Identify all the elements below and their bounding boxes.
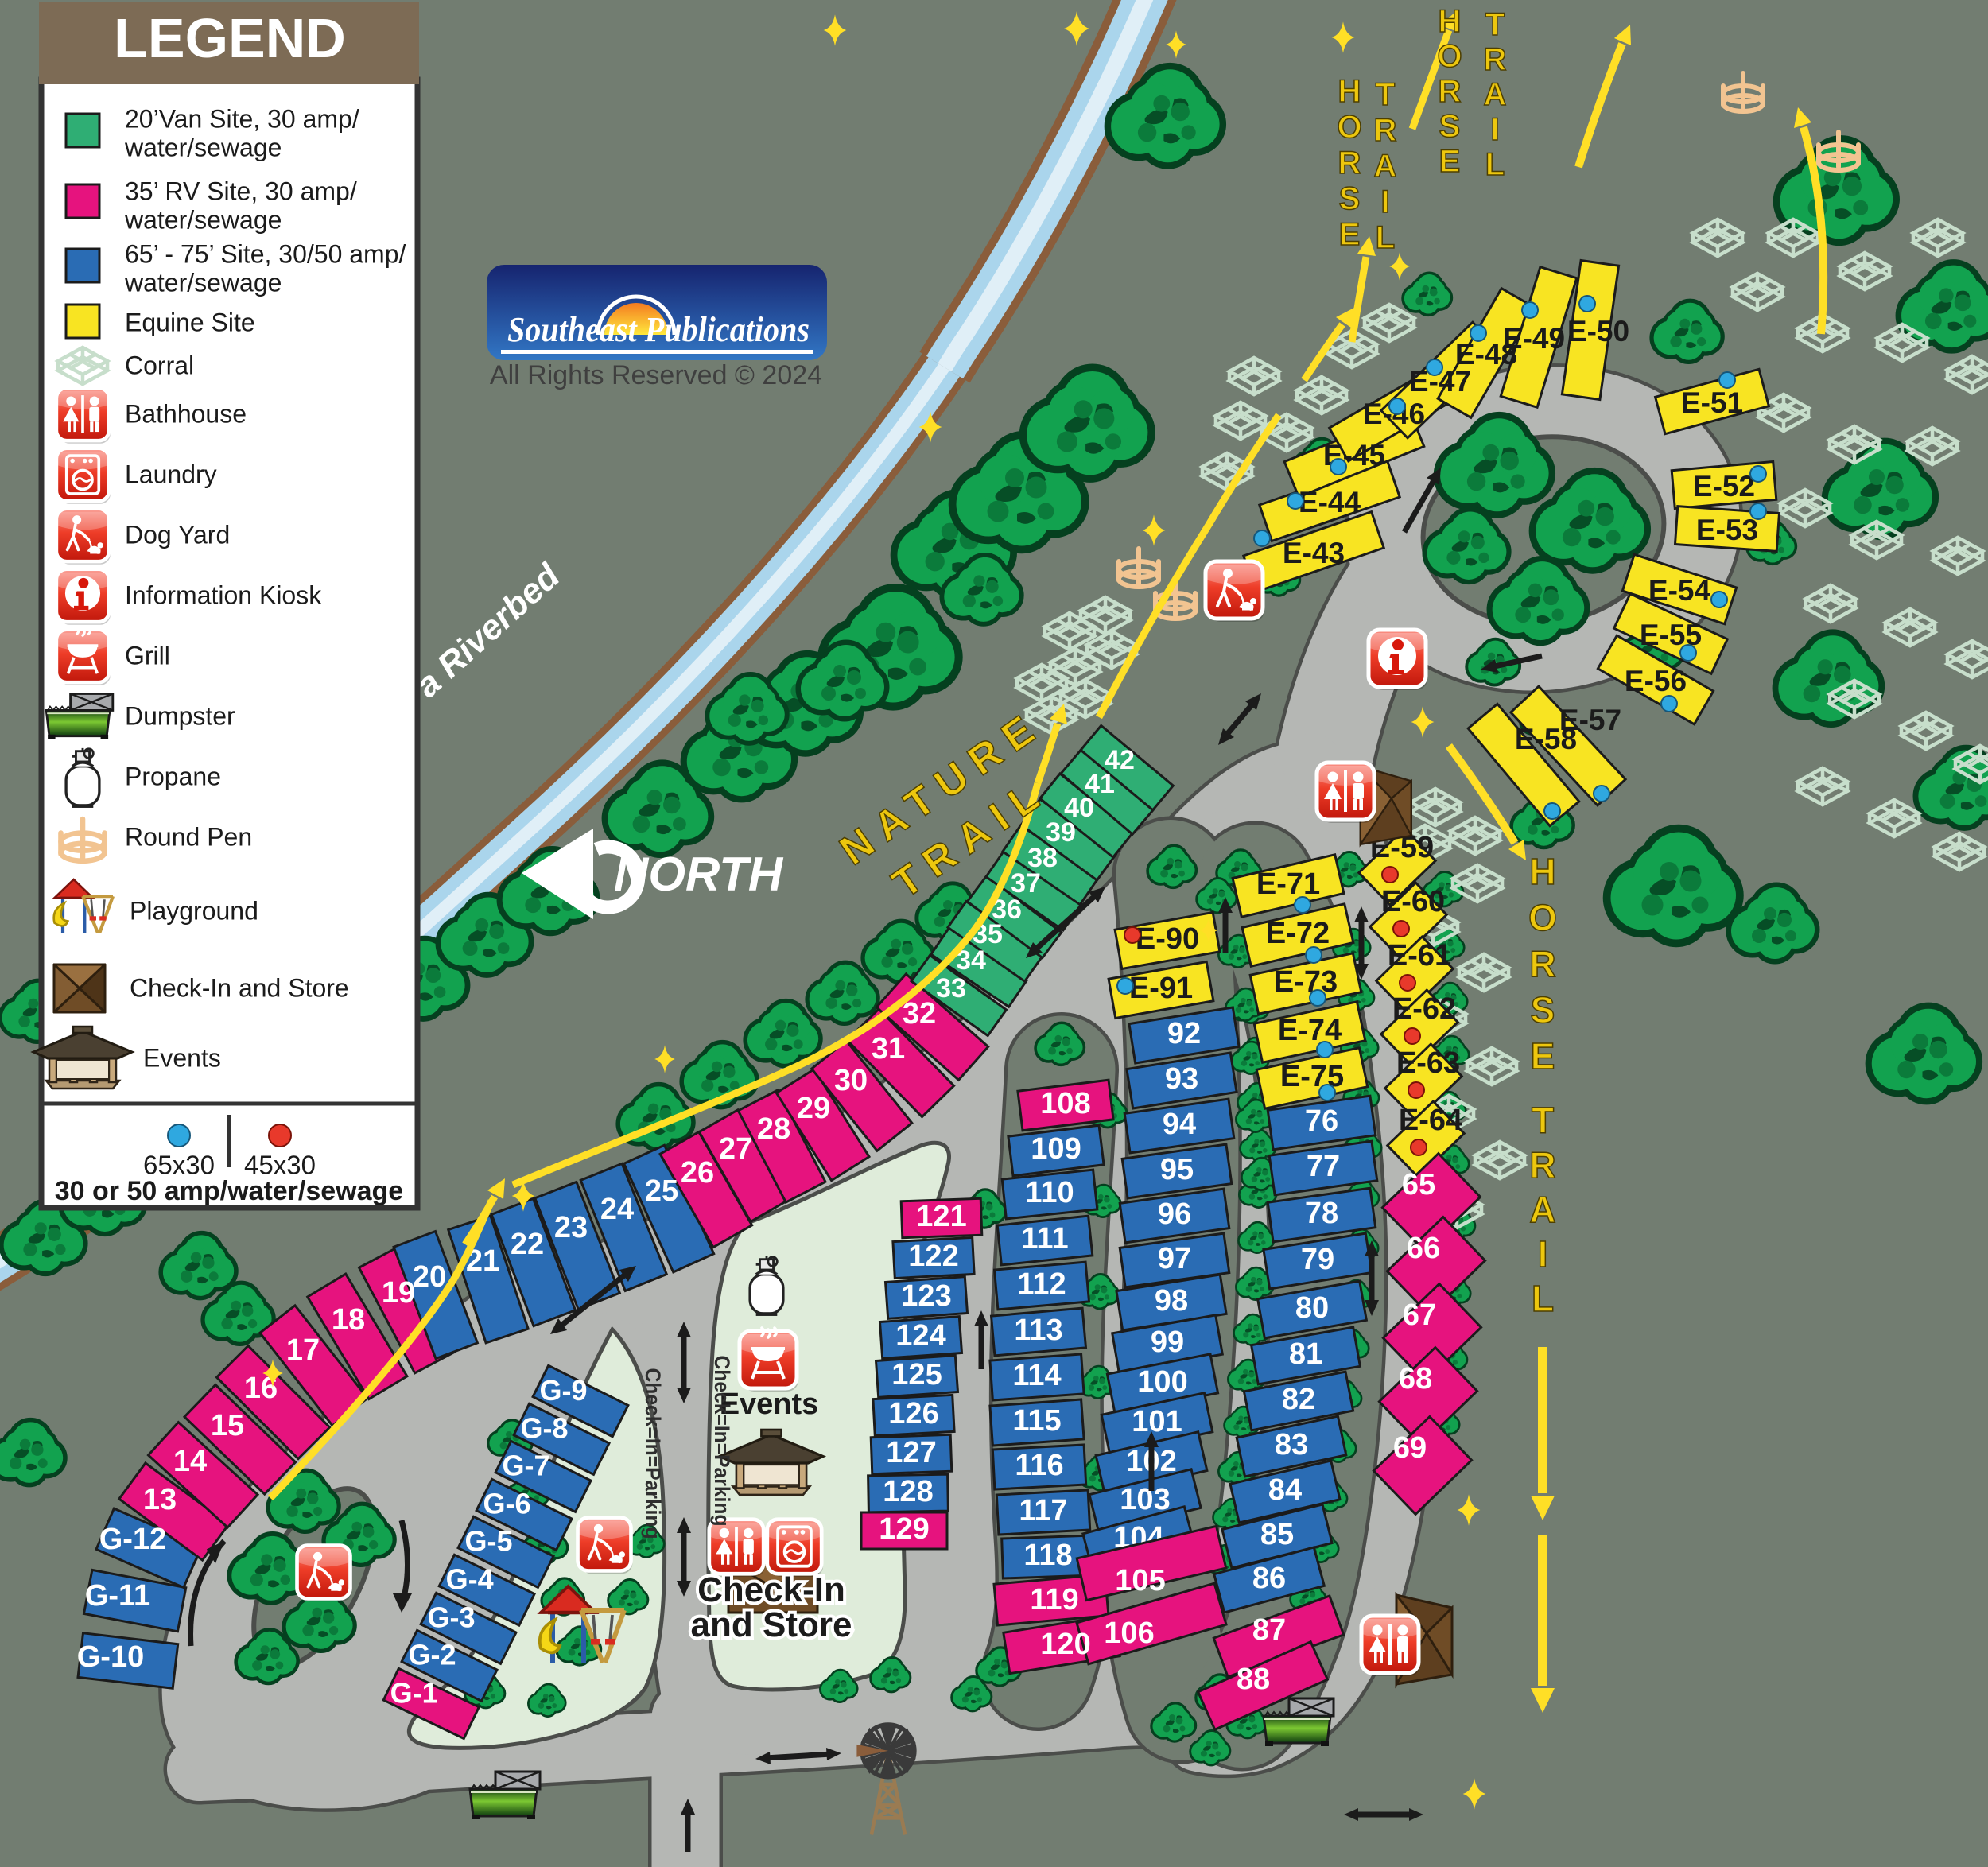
svg-text:LEGEND: LEGEND: [114, 7, 346, 69]
svg-text:13: 13: [143, 1483, 177, 1516]
svg-text:65: 65: [1402, 1168, 1435, 1201]
svg-text:78: 78: [1305, 1197, 1338, 1230]
svg-text:67: 67: [1403, 1298, 1436, 1332]
svg-text:80: 80: [1295, 1291, 1329, 1325]
svg-text:35’ RV Site, 30 amp/: 35’ RV Site, 30 amp/: [125, 177, 357, 205]
svg-text:H: H: [1338, 74, 1361, 109]
svg-text:S: S: [1531, 989, 1555, 1031]
svg-text:T: T: [1532, 1100, 1554, 1141]
svg-text:E-44: E-44: [1299, 486, 1361, 518]
svg-text:R: R: [1529, 943, 1555, 984]
svg-text:42: 42: [1105, 745, 1135, 775]
svg-text:E-56: E-56: [1625, 665, 1687, 697]
svg-text:82: 82: [1282, 1383, 1315, 1416]
svg-text:112: 112: [1017, 1267, 1066, 1301]
svg-text:O: O: [1528, 897, 1557, 938]
svg-text:I: I: [1380, 184, 1389, 219]
svg-text:20: 20: [413, 1260, 446, 1294]
svg-text:H: H: [1439, 4, 1462, 39]
svg-text:33: 33: [936, 973, 966, 1003]
svg-text:Laundry: Laundry: [125, 460, 217, 488]
svg-text:111: 111: [1021, 1222, 1068, 1256]
svg-text:E-49: E-49: [1503, 322, 1565, 355]
svg-text:L: L: [1532, 1278, 1554, 1319]
svg-text:68: 68: [1399, 1362, 1432, 1395]
svg-text:R: R: [1374, 113, 1397, 148]
svg-text:118: 118: [1023, 1539, 1072, 1572]
svg-text:93: 93: [1165, 1062, 1198, 1096]
svg-text:66: 66: [1407, 1232, 1440, 1265]
svg-text:water/sewage: water/sewage: [124, 205, 282, 234]
svg-text:E-43: E-43: [1283, 537, 1345, 569]
svg-text:G-5: G-5: [464, 1525, 512, 1558]
svg-text:A: A: [1484, 77, 1507, 112]
svg-text:14: 14: [173, 1445, 207, 1478]
svg-text:Propane: Propane: [125, 762, 221, 790]
svg-text:Dog Yard: Dog Yard: [125, 520, 230, 549]
svg-text:115: 115: [1012, 1404, 1061, 1438]
svg-text:20’Van Site, 30 amp/: 20’Van Site, 30 amp/: [125, 104, 359, 133]
svg-text:69: 69: [1393, 1431, 1427, 1465]
svg-text:98: 98: [1155, 1284, 1188, 1318]
svg-text:G-12: G-12: [99, 1523, 166, 1556]
svg-text:25: 25: [645, 1174, 678, 1208]
svg-text:19: 19: [382, 1276, 415, 1310]
svg-text:100: 100: [1137, 1365, 1187, 1399]
svg-text:Corral: Corral: [125, 351, 194, 379]
svg-text:S: S: [1439, 109, 1461, 144]
svg-text:G-6: G-6: [483, 1488, 530, 1520]
svg-text:E-64: E-64: [1399, 1104, 1462, 1137]
svg-text:31: 31: [872, 1032, 905, 1065]
svg-text:28: 28: [757, 1112, 790, 1146]
svg-text:120: 120: [1040, 1628, 1090, 1661]
svg-text:27: 27: [719, 1132, 752, 1166]
svg-text:T: T: [1485, 7, 1505, 42]
svg-text:126: 126: [888, 1397, 938, 1430]
svg-text:81: 81: [1289, 1337, 1322, 1371]
svg-text:15: 15: [211, 1409, 244, 1442]
svg-text:124: 124: [895, 1319, 945, 1353]
svg-text:T: T: [1376, 77, 1395, 112]
svg-text:106: 106: [1104, 1617, 1154, 1650]
svg-text:S: S: [1339, 181, 1361, 216]
svg-text:E: E: [1439, 144, 1461, 179]
svg-text:E-62: E-62: [1392, 992, 1456, 1026]
svg-text:85: 85: [1260, 1518, 1294, 1551]
svg-text:18: 18: [332, 1303, 365, 1337]
svg-text:77: 77: [1307, 1150, 1340, 1183]
svg-text:I: I: [1490, 112, 1499, 147]
svg-text:E-63: E-63: [1396, 1046, 1460, 1080]
svg-text:87: 87: [1252, 1613, 1286, 1647]
svg-text:125: 125: [891, 1358, 942, 1392]
svg-text:E-90: E-90: [1136, 922, 1199, 956]
svg-text:and Store: and Store: [691, 1605, 852, 1644]
svg-text:E: E: [1339, 217, 1361, 252]
svg-text:All Rights Reserved © 2024: All Rights Reserved © 2024: [490, 360, 822, 390]
svg-text:30: 30: [834, 1064, 868, 1097]
svg-text:17: 17: [286, 1333, 320, 1367]
svg-text:Playground: Playground: [130, 896, 258, 925]
svg-text:129: 129: [879, 1512, 929, 1546]
svg-text:Information Kiosk: Information Kiosk: [125, 580, 322, 609]
svg-text:R: R: [1338, 146, 1361, 180]
svg-text:L: L: [1376, 220, 1395, 255]
svg-text:water/sewage: water/sewage: [124, 268, 282, 297]
svg-text:Check-In: Check-In: [697, 1570, 845, 1609]
svg-text:A: A: [1374, 149, 1397, 184]
svg-text:E-50: E-50: [1567, 315, 1629, 347]
svg-text:G-2: G-2: [408, 1639, 456, 1671]
svg-text:Grill: Grill: [125, 641, 170, 670]
svg-text:L: L: [1485, 147, 1505, 182]
svg-text:84: 84: [1268, 1473, 1302, 1507]
svg-text:E: E: [1531, 1035, 1555, 1077]
svg-text:E-74: E-74: [1278, 1014, 1342, 1047]
svg-text:water/sewage: water/sewage: [124, 133, 282, 161]
svg-text:G-10: G-10: [77, 1640, 144, 1674]
svg-text:E-91: E-91: [1129, 972, 1193, 1005]
svg-text:116: 116: [1015, 1449, 1063, 1482]
svg-text:E-58: E-58: [1515, 723, 1577, 755]
svg-text:121: 121: [916, 1200, 966, 1233]
svg-text:Bathhouse: Bathhouse: [125, 399, 247, 428]
svg-text:E-60: E-60: [1381, 885, 1445, 918]
svg-text:E-72: E-72: [1266, 917, 1330, 950]
svg-text:NORTH: NORTH: [614, 848, 784, 901]
svg-text:97: 97: [1158, 1242, 1191, 1275]
svg-text:E-51: E-51: [1681, 386, 1743, 419]
svg-text:24: 24: [600, 1193, 634, 1226]
svg-text:Dumpster: Dumpster: [125, 701, 235, 730]
svg-text:R: R: [1529, 1144, 1555, 1186]
svg-text:122: 122: [908, 1240, 958, 1273]
svg-text:32: 32: [903, 997, 936, 1031]
svg-text:E-73: E-73: [1274, 965, 1338, 999]
svg-text:O: O: [1337, 110, 1361, 145]
svg-text:65’ - 75’ Site, 30/50 amp/: 65’ - 75’ Site, 30/50 amp/: [125, 239, 406, 268]
svg-text:23: 23: [554, 1211, 588, 1244]
svg-text:95: 95: [1160, 1153, 1194, 1186]
svg-text:Southeast Publications: Southeast Publications: [507, 310, 810, 349]
svg-text:Check-In and Store: Check-In and Store: [130, 973, 349, 1002]
svg-text:E-52: E-52: [1693, 470, 1755, 503]
svg-text:E-53: E-53: [1696, 514, 1758, 546]
svg-text:92: 92: [1167, 1017, 1201, 1050]
svg-text:Equine Site: Equine Site: [125, 308, 255, 336]
svg-text:I: I: [1538, 1233, 1548, 1275]
svg-text:Events: Events: [143, 1043, 221, 1072]
svg-text:114: 114: [1012, 1359, 1061, 1392]
svg-text:26: 26: [681, 1156, 714, 1190]
svg-text:G-9: G-9: [539, 1374, 587, 1407]
svg-text:110: 110: [1025, 1176, 1074, 1209]
svg-text:O: O: [1437, 39, 1462, 74]
svg-text:R: R: [1439, 74, 1462, 109]
svg-text:96: 96: [1158, 1197, 1191, 1231]
svg-text:109: 109: [1031, 1132, 1081, 1166]
svg-text:22: 22: [511, 1228, 544, 1261]
svg-text:108: 108: [1040, 1087, 1090, 1120]
svg-text:R: R: [1484, 42, 1507, 77]
svg-text:Round Pen: Round Pen: [125, 822, 252, 851]
svg-text:A: A: [1529, 1189, 1555, 1230]
svg-text:30 or 50 amp/water/sewage: 30 or 50 amp/water/sewage: [55, 1176, 403, 1206]
svg-text:101: 101: [1132, 1405, 1182, 1438]
svg-text:119: 119: [1030, 1583, 1078, 1617]
svg-text:Check=In=Parking: Check=In=Parking: [710, 1356, 734, 1527]
svg-text:105: 105: [1115, 1564, 1165, 1597]
svg-text:G-11: G-11: [85, 1579, 150, 1613]
svg-text:G-7: G-7: [502, 1450, 549, 1482]
svg-text:G-8: G-8: [520, 1412, 568, 1445]
svg-text:113: 113: [1014, 1314, 1062, 1347]
svg-text:29: 29: [797, 1092, 830, 1125]
svg-text:88: 88: [1237, 1663, 1270, 1696]
svg-text:103: 103: [1120, 1483, 1170, 1516]
svg-text:E-54: E-54: [1648, 574, 1711, 607]
svg-text:83: 83: [1275, 1428, 1308, 1461]
svg-text:H: H: [1529, 851, 1555, 892]
svg-text:G-3: G-3: [427, 1601, 475, 1634]
svg-text:E-71: E-71: [1256, 868, 1320, 901]
svg-text:94: 94: [1163, 1108, 1196, 1141]
svg-text:99: 99: [1151, 1326, 1184, 1359]
svg-text:128: 128: [883, 1475, 933, 1508]
svg-text:E-61: E-61: [1388, 939, 1451, 972]
svg-text:G-4: G-4: [446, 1563, 494, 1596]
svg-text:127: 127: [886, 1436, 936, 1469]
svg-text:117: 117: [1019, 1494, 1067, 1527]
svg-text:76: 76: [1305, 1104, 1338, 1138]
svg-text:G-1: G-1: [390, 1677, 438, 1710]
svg-text:Check=In=Parking: Check=In=Parking: [641, 1368, 665, 1539]
svg-text:79: 79: [1301, 1243, 1334, 1276]
svg-text:86: 86: [1252, 1562, 1286, 1595]
svg-text:123: 123: [901, 1279, 951, 1313]
